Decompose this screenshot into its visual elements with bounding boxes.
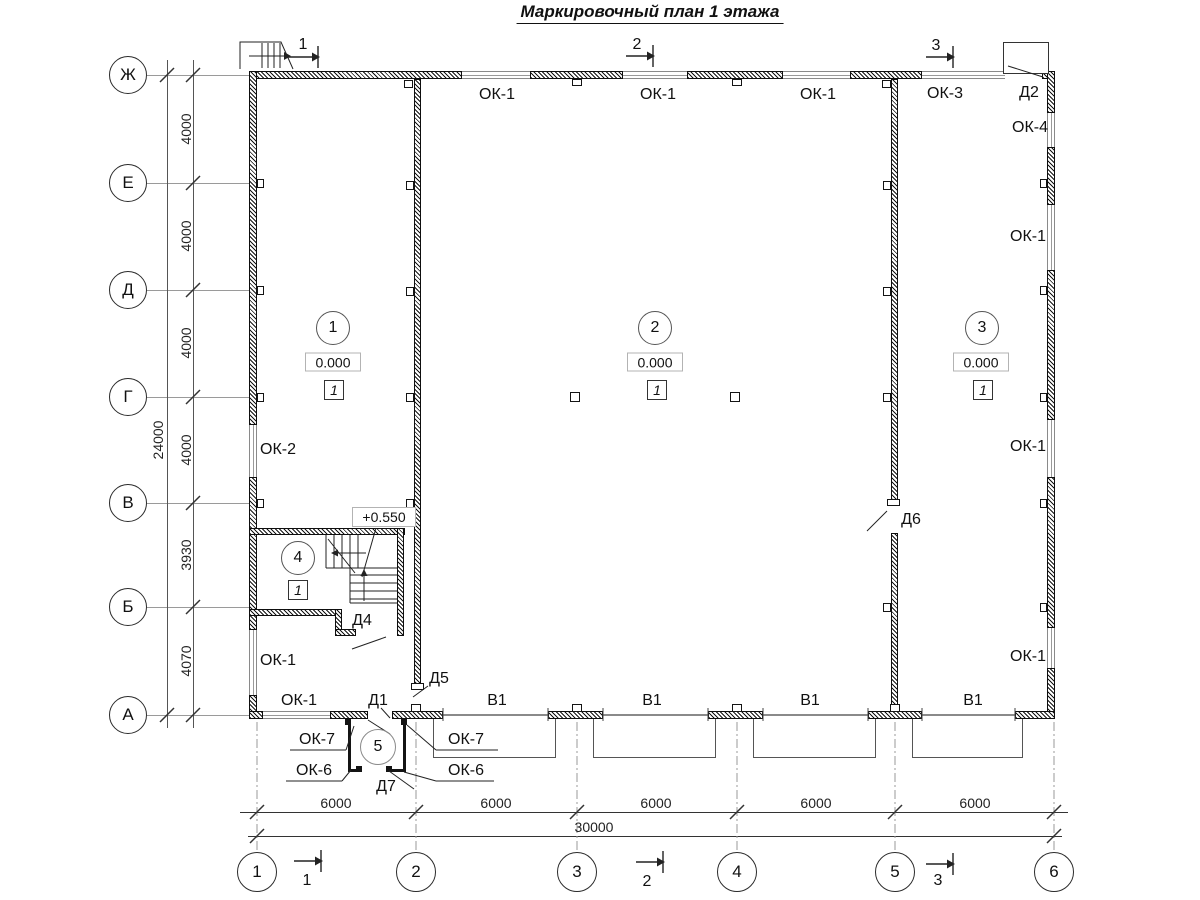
dimension-value: 6000 (959, 795, 990, 811)
door-mark: Д4 (352, 612, 372, 630)
column-axis-bubble: 6 (1034, 852, 1074, 892)
column-axis-bubble: 1 (237, 852, 277, 892)
window-mark: ОК-1 (479, 86, 515, 104)
floor-type-mark: 1 (647, 380, 667, 400)
pilaster (257, 179, 264, 188)
room-number-bubble: 1 (316, 311, 350, 345)
dimension-total-value: 24000 (150, 421, 166, 460)
pilaster (883, 287, 891, 296)
door-mark: Д2 (1019, 84, 1039, 102)
section-mark-label: 1 (303, 872, 312, 890)
window-mark: ОК-1 (1010, 438, 1046, 456)
row-axis-bubble: Е (109, 164, 147, 202)
column (570, 392, 580, 402)
column-axis-bubble: 5 (875, 852, 915, 892)
section-mark-label: 1 (299, 36, 308, 54)
pilaster (572, 79, 582, 86)
window-mark: ОК-6 (448, 762, 484, 780)
pilaster (406, 287, 414, 296)
door-mark: Д7 (376, 778, 396, 796)
floor-type-mark: 1 (288, 580, 308, 600)
row-axis-bubble: В (109, 484, 147, 522)
dimension-value: 6000 (640, 795, 671, 811)
pilaster (1040, 603, 1047, 612)
window-mark: ОК-1 (281, 692, 317, 710)
room-elevation: 0.000 (627, 353, 683, 372)
window-mark: ОК-1 (800, 86, 836, 104)
pilaster (883, 181, 891, 190)
dimension-value: 4070 (178, 645, 194, 676)
pilaster (1040, 286, 1047, 295)
pilaster (732, 79, 742, 86)
dimension-total-value: 30000 (575, 819, 614, 835)
pilaster (411, 704, 421, 712)
row-axis-bubble: Д (109, 271, 147, 309)
room-elevation: 0.000 (953, 353, 1009, 372)
gate-mark: В1 (963, 692, 983, 710)
dimension-value: 6000 (480, 795, 511, 811)
door-mark: Д5 (429, 670, 449, 688)
section-mark-label: 2 (633, 36, 642, 54)
stair-landing-elevation: +0.550 (352, 507, 416, 527)
pilaster (1040, 499, 1047, 508)
pilaster (732, 704, 742, 712)
floor-type-mark: 1 (973, 380, 993, 400)
column-axis-bubble: 3 (557, 852, 597, 892)
door-mark: Д6 (901, 511, 921, 529)
floor-type-mark: 1 (324, 380, 344, 400)
window-mark: ОК-6 (296, 762, 332, 780)
door-mark: Д1 (368, 692, 388, 710)
dimension-value: 3930 (178, 539, 194, 570)
window-mark: ОК-1 (1010, 228, 1046, 246)
room-number-bubble: 5 (360, 729, 396, 765)
floor-plan-drawing: Маркировочный план 1 этажа (0, 0, 1200, 900)
gate-mark: В1 (800, 692, 820, 710)
room-number-bubble: 2 (638, 311, 672, 345)
window-mark: ОК-2 (260, 441, 296, 459)
pilaster (890, 704, 900, 712)
section-mark-label: 3 (934, 872, 943, 890)
room-number-bubble: 3 (965, 311, 999, 345)
row-axis-bubble: Г (109, 378, 147, 416)
window-mark: ОК-3 (927, 85, 963, 103)
pilaster (406, 181, 414, 190)
pilaster (883, 603, 891, 612)
row-axis-bubble: Ж (109, 56, 147, 94)
pilaster (1040, 393, 1047, 402)
pilaster (257, 499, 264, 508)
room-number-bubble: 4 (281, 541, 315, 575)
pilaster (883, 393, 891, 402)
room-elevation: 0.000 (305, 353, 361, 372)
dimension-value: 6000 (320, 795, 351, 811)
dimension-value: 4000 (178, 327, 194, 358)
section-mark-label: 2 (643, 873, 652, 891)
dimension-value: 4000 (178, 220, 194, 251)
column-axis-bubble: 2 (396, 852, 436, 892)
pilaster (257, 393, 264, 402)
pilaster (257, 286, 264, 295)
section-mark-label: 3 (932, 37, 941, 55)
pilaster (1040, 179, 1047, 188)
gate-mark: В1 (487, 692, 507, 710)
dimension-value: 6000 (800, 795, 831, 811)
pilaster (572, 704, 582, 712)
dimension-value: 4000 (178, 434, 194, 465)
row-axis-bubble: Б (109, 588, 147, 626)
window-mark: ОК-7 (299, 731, 335, 749)
pilaster (882, 80, 891, 88)
gate-mark: В1 (642, 692, 662, 710)
dimension-value: 4000 (178, 113, 194, 144)
pilaster (406, 393, 414, 402)
window-mark: ОК-1 (640, 86, 676, 104)
window-mark: ОК-4 (1012, 119, 1048, 137)
row-axis-bubble: А (109, 696, 147, 734)
column (730, 392, 740, 402)
window-mark: ОК-7 (448, 731, 484, 749)
column-axis-bubble: 4 (717, 852, 757, 892)
window-mark: ОК-1 (260, 652, 296, 670)
pilaster (404, 80, 413, 88)
window-mark: ОК-1 (1010, 648, 1046, 666)
